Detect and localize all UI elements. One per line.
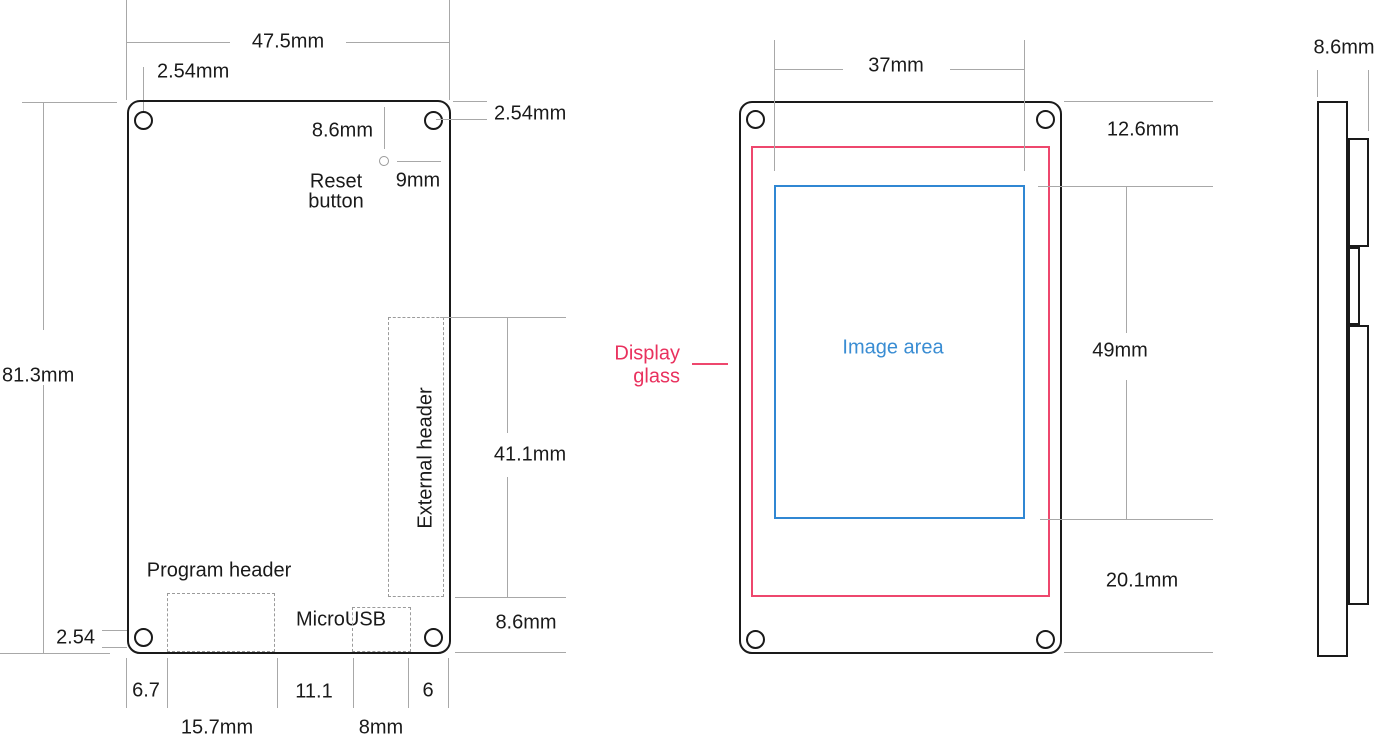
tick-line bbox=[353, 658, 354, 708]
dim-line bbox=[126, 42, 230, 43]
bottom-margin-dim: 20.1mm bbox=[1106, 571, 1178, 592]
image-height-dim: 49mm bbox=[1092, 341, 1148, 362]
dim-line bbox=[102, 630, 127, 631]
dim-line bbox=[102, 647, 127, 648]
drawing-canvas: 47.5mm 2.54mm 2.54mm 8.6mm 9mm Reset but… bbox=[0, 0, 1375, 748]
mounting-hole bbox=[746, 630, 765, 649]
microusb-outline bbox=[352, 607, 411, 652]
mounting-hole bbox=[134, 111, 153, 130]
bottom-dim: 15.7mm bbox=[181, 718, 253, 739]
dim-line bbox=[440, 317, 566, 318]
dim-line bbox=[455, 652, 566, 653]
mounting-hole bbox=[746, 110, 765, 129]
display-glass-label: Display bbox=[614, 344, 680, 365]
external-header-bottom-dim: 8.6mm bbox=[495, 613, 556, 634]
guide-line bbox=[1317, 70, 1318, 97]
dim-line bbox=[1064, 652, 1213, 653]
mounting-hole bbox=[1036, 110, 1055, 129]
external-header-length-dim: 41.1mm bbox=[494, 445, 566, 466]
hole-offset-right-dim: 2.54mm bbox=[494, 104, 566, 125]
side-profile-slab bbox=[1317, 101, 1348, 657]
dim-line bbox=[1064, 101, 1213, 102]
external-header-label: External header bbox=[416, 387, 437, 528]
dim-line bbox=[397, 161, 441, 162]
bottom-dim: 6.7 bbox=[132, 681, 160, 702]
dim-line bbox=[43, 102, 44, 330]
thickness-dim: 8.6mm bbox=[1313, 38, 1374, 59]
dim-line bbox=[1126, 380, 1127, 519]
guide-line bbox=[449, 0, 450, 100]
dim-line bbox=[346, 42, 449, 43]
dim-line bbox=[0, 653, 110, 654]
board-width-dim: 47.5mm bbox=[252, 32, 324, 53]
display-glass-leader-line bbox=[692, 363, 728, 365]
dim-line bbox=[43, 385, 44, 653]
hole-offset-bottom-dim: 2.54 bbox=[56, 628, 95, 649]
bottom-dim: 11.1 bbox=[295, 682, 332, 703]
top-margin-dim: 12.6mm bbox=[1107, 120, 1179, 141]
hole-offset-top-dim: 2.54mm bbox=[157, 62, 229, 83]
tick-line bbox=[408, 658, 409, 708]
reset-offset-v-dim: 8.6mm bbox=[312, 121, 373, 142]
dim-line bbox=[455, 597, 566, 598]
tick-line bbox=[277, 658, 278, 708]
dim-line bbox=[436, 119, 487, 120]
dim-line bbox=[384, 107, 385, 149]
tick-line bbox=[126, 658, 127, 708]
reset-button-label: button bbox=[308, 192, 364, 213]
tick-line bbox=[167, 658, 168, 708]
mounting-hole bbox=[424, 111, 443, 130]
dim-line bbox=[774, 69, 843, 70]
dim-line bbox=[1126, 186, 1127, 333]
board-height-dim: 81.3mm bbox=[2, 366, 74, 387]
reset-button-circle bbox=[379, 156, 389, 166]
dim-line bbox=[22, 102, 117, 103]
program-header-outline bbox=[167, 593, 275, 652]
program-header-label: Program header bbox=[147, 561, 292, 582]
bottom-dim: 6 bbox=[422, 681, 433, 702]
bottom-dim: 8mm bbox=[359, 718, 403, 739]
guide-line bbox=[1024, 40, 1025, 171]
side-profile-middle-strip bbox=[1348, 247, 1360, 325]
guide-line bbox=[774, 40, 775, 171]
image-width-dim: 37mm bbox=[868, 56, 924, 77]
dim-line bbox=[1040, 519, 1213, 520]
dim-line bbox=[507, 477, 508, 597]
mounting-hole bbox=[134, 628, 153, 647]
dim-line bbox=[453, 101, 487, 102]
guide-line bbox=[126, 0, 127, 100]
reset-button-label: Reset bbox=[310, 172, 362, 193]
mounting-hole bbox=[424, 628, 443, 647]
image-area-label: Image area bbox=[842, 338, 943, 359]
mounting-hole bbox=[1036, 630, 1055, 649]
dim-line bbox=[950, 69, 1024, 70]
dim-line bbox=[507, 317, 508, 433]
display-glass-label: glass bbox=[633, 367, 680, 388]
side-profile-upper-block bbox=[1348, 138, 1369, 247]
side-profile-lower-block bbox=[1348, 325, 1369, 605]
reset-offset-h-dim: 9mm bbox=[396, 171, 440, 192]
guide-line bbox=[1368, 70, 1369, 131]
tick-line bbox=[448, 658, 449, 708]
